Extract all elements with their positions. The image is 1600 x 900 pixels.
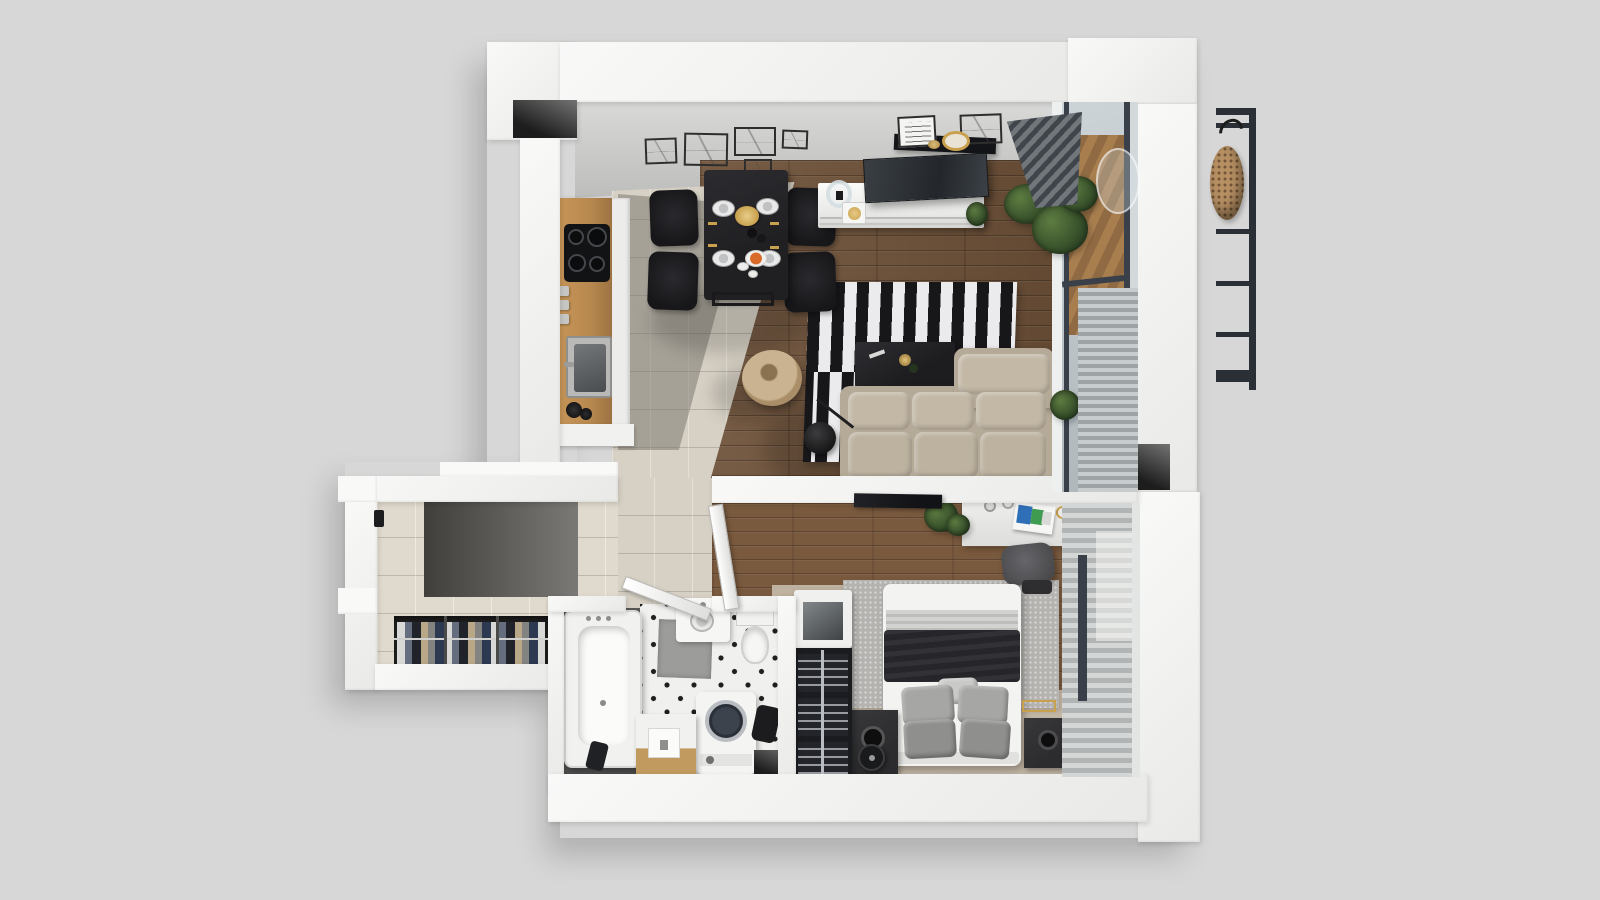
toilet-tank <box>736 610 774 626</box>
wardrobe-divider <box>444 616 447 668</box>
display-cabinet <box>794 590 852 648</box>
frame-text <box>905 121 932 143</box>
wall-top <box>560 42 1070 102</box>
wardrobe-rail <box>394 638 548 640</box>
machine-lid <box>705 700 747 742</box>
dining-chair <box>647 251 699 311</box>
washing-machine <box>696 692 756 774</box>
place-setting <box>712 250 735 267</box>
railing-bar <box>1216 281 1250 286</box>
robot-vacuum <box>858 744 885 771</box>
wall-top-right-block <box>1068 38 1197 104</box>
gold-basket <box>1022 700 1056 712</box>
burner <box>568 254 586 272</box>
burner <box>589 256 605 272</box>
curtain-light <box>1096 531 1136 641</box>
cooktop <box>564 224 610 282</box>
tv <box>863 153 989 203</box>
bubble-chair <box>1096 148 1140 214</box>
gold-box-lid <box>848 207 861 220</box>
railing-bar <box>1216 332 1250 337</box>
wall-pilaster <box>338 588 377 614</box>
wardrobe <box>394 616 548 668</box>
vacuum-button <box>869 755 875 761</box>
wall-bathroom-west <box>548 596 564 792</box>
kitchen-sink <box>566 336 612 398</box>
machine-knob <box>706 756 714 764</box>
sofa-cushion <box>912 392 974 430</box>
tub-basin <box>578 626 630 746</box>
place-setting <box>712 200 735 217</box>
cutlery-icon <box>708 244 717 247</box>
desk-plant <box>946 514 970 536</box>
dining-table-legs <box>712 292 774 306</box>
hanging-clothes <box>397 622 545 664</box>
gold-dish <box>928 140 940 149</box>
window-wall-bedroom <box>1062 503 1140 777</box>
bedroom-wall-tv <box>854 493 942 509</box>
railing-bar <box>1216 229 1250 234</box>
window-glass-right <box>1132 503 1140 777</box>
saucer <box>737 262 749 271</box>
bottle <box>747 228 757 238</box>
kitchen-counter-end <box>556 424 634 446</box>
gold-box <box>842 202 866 224</box>
sofa-seat <box>914 432 978 478</box>
wall-niche <box>513 100 577 138</box>
sofa <box>840 348 1054 484</box>
floor-lamp <box>802 394 862 458</box>
cutlery-icon <box>770 222 779 225</box>
saucer <box>748 270 758 278</box>
console-plant <box>966 202 988 226</box>
picture-frame <box>645 137 678 164</box>
magazine <box>1041 511 1052 525</box>
wall-hallway-top <box>345 476 618 502</box>
burner <box>587 227 607 247</box>
picture-frame <box>734 127 776 156</box>
sofa-cushion <box>958 354 1050 394</box>
egg-chair <box>1210 146 1244 220</box>
faucet-icon <box>586 616 591 621</box>
railing-bar <box>1216 370 1254 382</box>
entrance-door-handle <box>374 510 384 527</box>
dining-chair <box>783 251 837 313</box>
sink-basin <box>574 344 606 392</box>
picture-frame <box>684 133 729 167</box>
toilet <box>736 610 774 672</box>
speaker-cone-icon <box>1038 730 1058 750</box>
living-blinds <box>1078 288 1138 492</box>
window-frame-bar <box>1078 555 1087 701</box>
toilet-bowl <box>741 626 769 664</box>
sofa-cushion <box>976 392 1046 430</box>
stool-cabinet <box>636 714 696 776</box>
railing-rail <box>1249 108 1256 390</box>
place-setting <box>756 198 779 215</box>
dining-chair <box>649 189 699 247</box>
faucet-icon <box>606 616 611 621</box>
wall-bottom <box>548 774 1148 822</box>
dining-table <box>704 170 788 300</box>
desk-chair-base <box>1022 580 1052 594</box>
round-mirror <box>942 131 970 151</box>
faucet-icon <box>564 362 574 367</box>
cutlery-icon <box>708 222 717 225</box>
wall-kitchen-left <box>520 138 560 468</box>
apartment-floor-plan <box>0 0 1600 900</box>
sofa-side-plant <box>1050 390 1080 420</box>
gold-tray <box>735 206 759 226</box>
bed-blanket <box>884 630 1020 682</box>
wall-right-upper <box>1130 104 1197 492</box>
wall-bathroom-east <box>778 596 796 792</box>
wall-bathroom-north <box>548 596 626 612</box>
cutlery-icon <box>770 246 779 249</box>
vase-decor <box>836 191 843 200</box>
picture-frame <box>782 130 809 150</box>
shoe-rack <box>794 648 852 784</box>
wall-hallway-bottom <box>375 664 560 690</box>
bed-fold <box>886 610 1018 632</box>
burner <box>568 229 584 245</box>
sofa-seat <box>980 432 1046 478</box>
wardrobe-divider <box>496 616 499 668</box>
bottle <box>580 408 592 420</box>
bottle <box>757 234 766 243</box>
kitchen-cabinet-edge <box>612 198 630 430</box>
rack-rod <box>821 650 824 782</box>
bed-pillow <box>903 719 957 760</box>
faucet-icon <box>596 616 601 621</box>
tub-drain <box>600 700 606 706</box>
cabinet-glass <box>803 602 843 640</box>
wall-pilaster <box>338 476 377 502</box>
magazines <box>1012 501 1056 534</box>
wicker-chair <box>742 350 802 406</box>
entry-floor-tiles <box>424 500 578 597</box>
lamp-shade <box>804 422 836 454</box>
bed-pillow <box>959 718 1012 759</box>
tissue-slot <box>660 740 668 750</box>
